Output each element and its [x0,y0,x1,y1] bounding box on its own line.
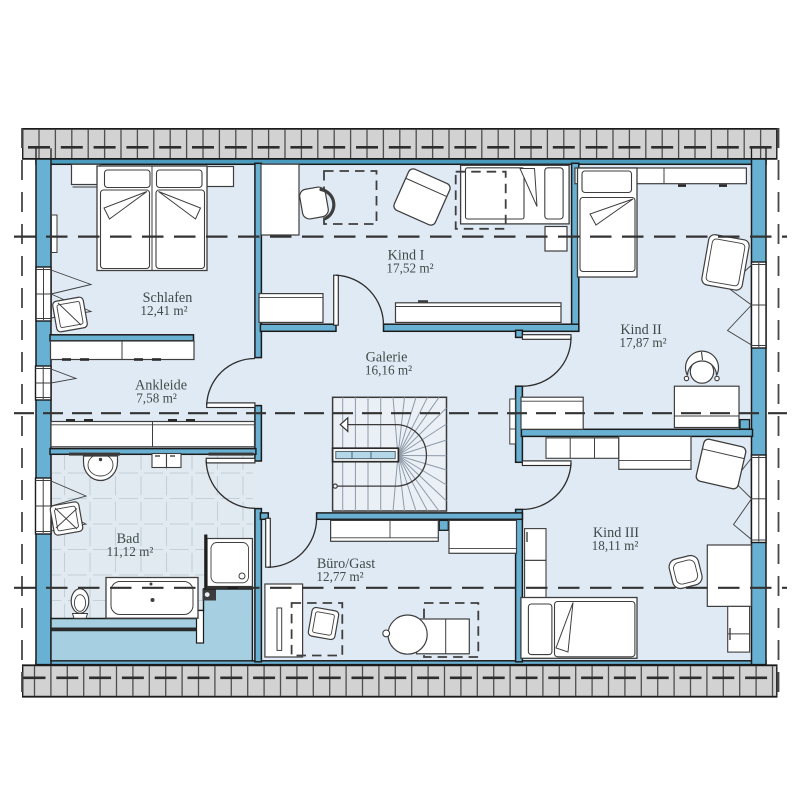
svg-text:18,11 m²: 18,11 m² [592,538,639,553]
svg-text:12,41 m²: 12,41 m² [140,303,187,318]
svg-text:11,12 m²: 11,12 m² [107,544,154,559]
svg-text:7,58 m²: 7,58 m² [136,391,177,406]
svg-text:17,87 m²: 17,87 m² [619,335,666,350]
svg-text:12,77 m²: 12,77 m² [316,569,363,584]
svg-text:16,16 m²: 16,16 m² [365,363,412,378]
svg-text:17,52 m²: 17,52 m² [386,261,433,276]
